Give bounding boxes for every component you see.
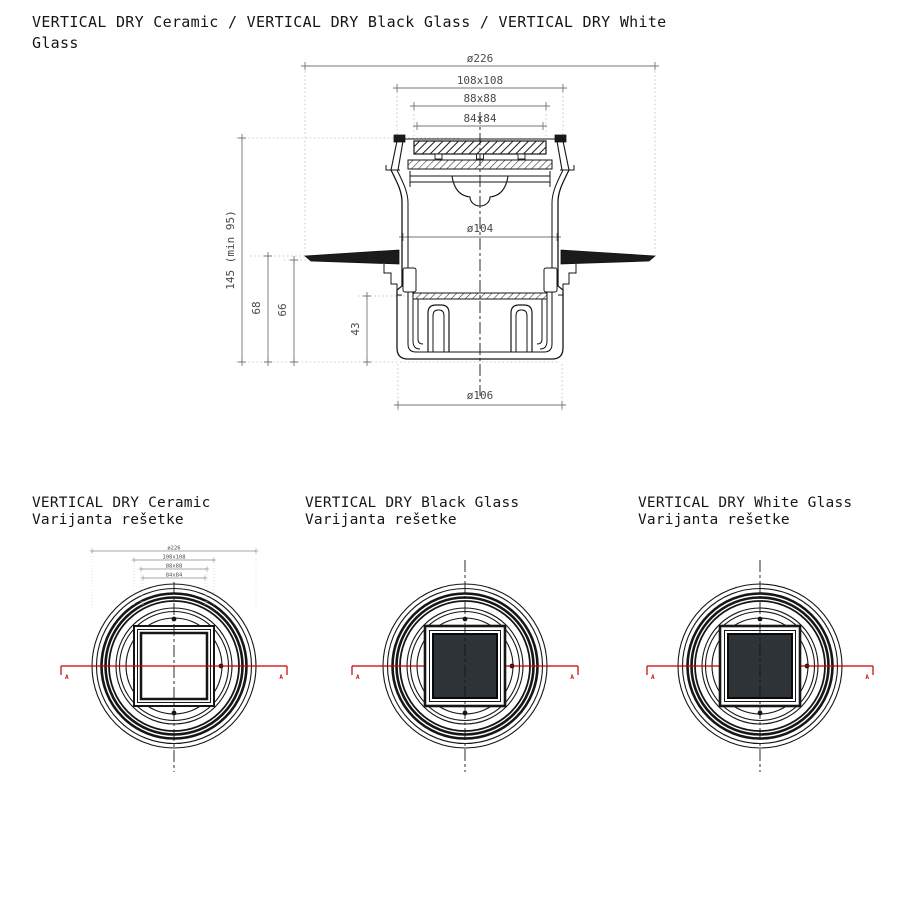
extension-lines [236, 71, 655, 411]
dim-label-108: 108x108 [457, 74, 503, 87]
section-marker-label: A [356, 674, 360, 681]
dim-label-68: 68 [250, 301, 263, 314]
left-wing [305, 250, 399, 264]
top-view-2: AA [647, 560, 873, 772]
top-views-group: AAø226108x10888x8884x84AAAA [61, 546, 873, 773]
top-view-1: AA [352, 560, 578, 772]
section-marker-label: A [279, 674, 283, 681]
dim-label-88: 88x88 [463, 92, 496, 105]
right-wing [561, 250, 655, 264]
dim-label-145: 145 (min 95) [224, 210, 237, 289]
dimension-lines [242, 66, 655, 405]
tiny-dim-label: 108x108 [162, 555, 185, 561]
section-marker-label: A [570, 674, 574, 681]
dimension-ticks [238, 62, 659, 409]
section-marker-label: A [651, 674, 655, 681]
drawing-page: VERTICAL DRY Ceramic / VERTICAL DRY Blac… [0, 0, 900, 900]
cross-section-view: ø226 108x108 88x88 84x84 ø104 ø106 145 (… [224, 52, 659, 411]
tiny-dim-label: 88x88 [166, 564, 183, 570]
tiny-dim-label: 84x84 [166, 573, 183, 579]
tiny-dim-label: ø226 [167, 546, 180, 552]
dim-label-43: 43 [349, 322, 362, 335]
top-view-0: AAø226108x10888x8884x84 [61, 546, 287, 773]
dim-label-d226: ø226 [467, 52, 494, 65]
section-marker-label: A [65, 674, 69, 681]
technical-drawing: ø226 108x108 88x88 84x84 ø104 ø106 145 (… [0, 0, 900, 900]
dim-label-66: 66 [276, 303, 289, 316]
section-marker-label: A [865, 674, 869, 681]
